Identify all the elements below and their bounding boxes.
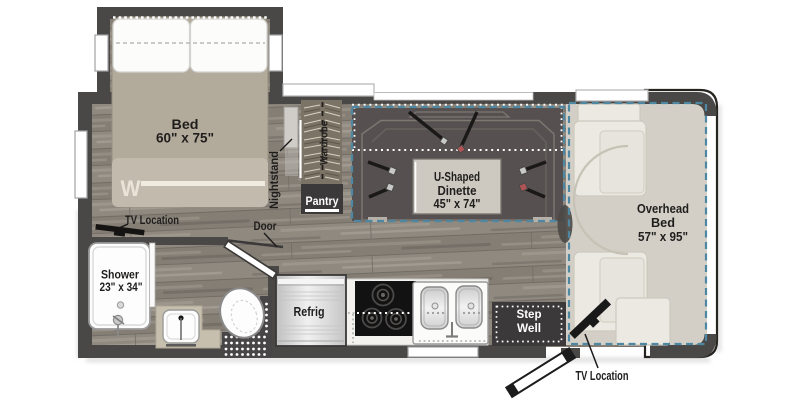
svg-text:45" x 74": 45" x 74" <box>434 196 481 211</box>
svg-text:Overhead: Overhead <box>637 201 689 216</box>
svg-text:Step: Step <box>517 307 542 321</box>
svg-text:U-Shaped: U-Shaped <box>434 169 480 184</box>
svg-text:60" x 75": 60" x 75" <box>156 131 214 146</box>
svg-text:W: W <box>121 176 141 201</box>
svg-text:Well: Well <box>517 321 541 335</box>
svg-text:Refrig: Refrig <box>294 305 325 319</box>
svg-text:TV Location: TV Location <box>125 213 179 227</box>
svg-text:Nightstand: Nightstand <box>269 151 281 209</box>
svg-text:Pantry: Pantry <box>306 196 340 208</box>
svg-text:Bed: Bed <box>651 215 675 230</box>
svg-text:Door: Door <box>254 219 277 233</box>
svg-text:57" x 95": 57" x 95" <box>638 229 688 244</box>
svg-text:23" x 34": 23" x 34" <box>100 280 143 294</box>
svg-text:Wardrobe: Wardrobe <box>319 121 331 165</box>
svg-text:TV Location: TV Location <box>576 369 629 383</box>
